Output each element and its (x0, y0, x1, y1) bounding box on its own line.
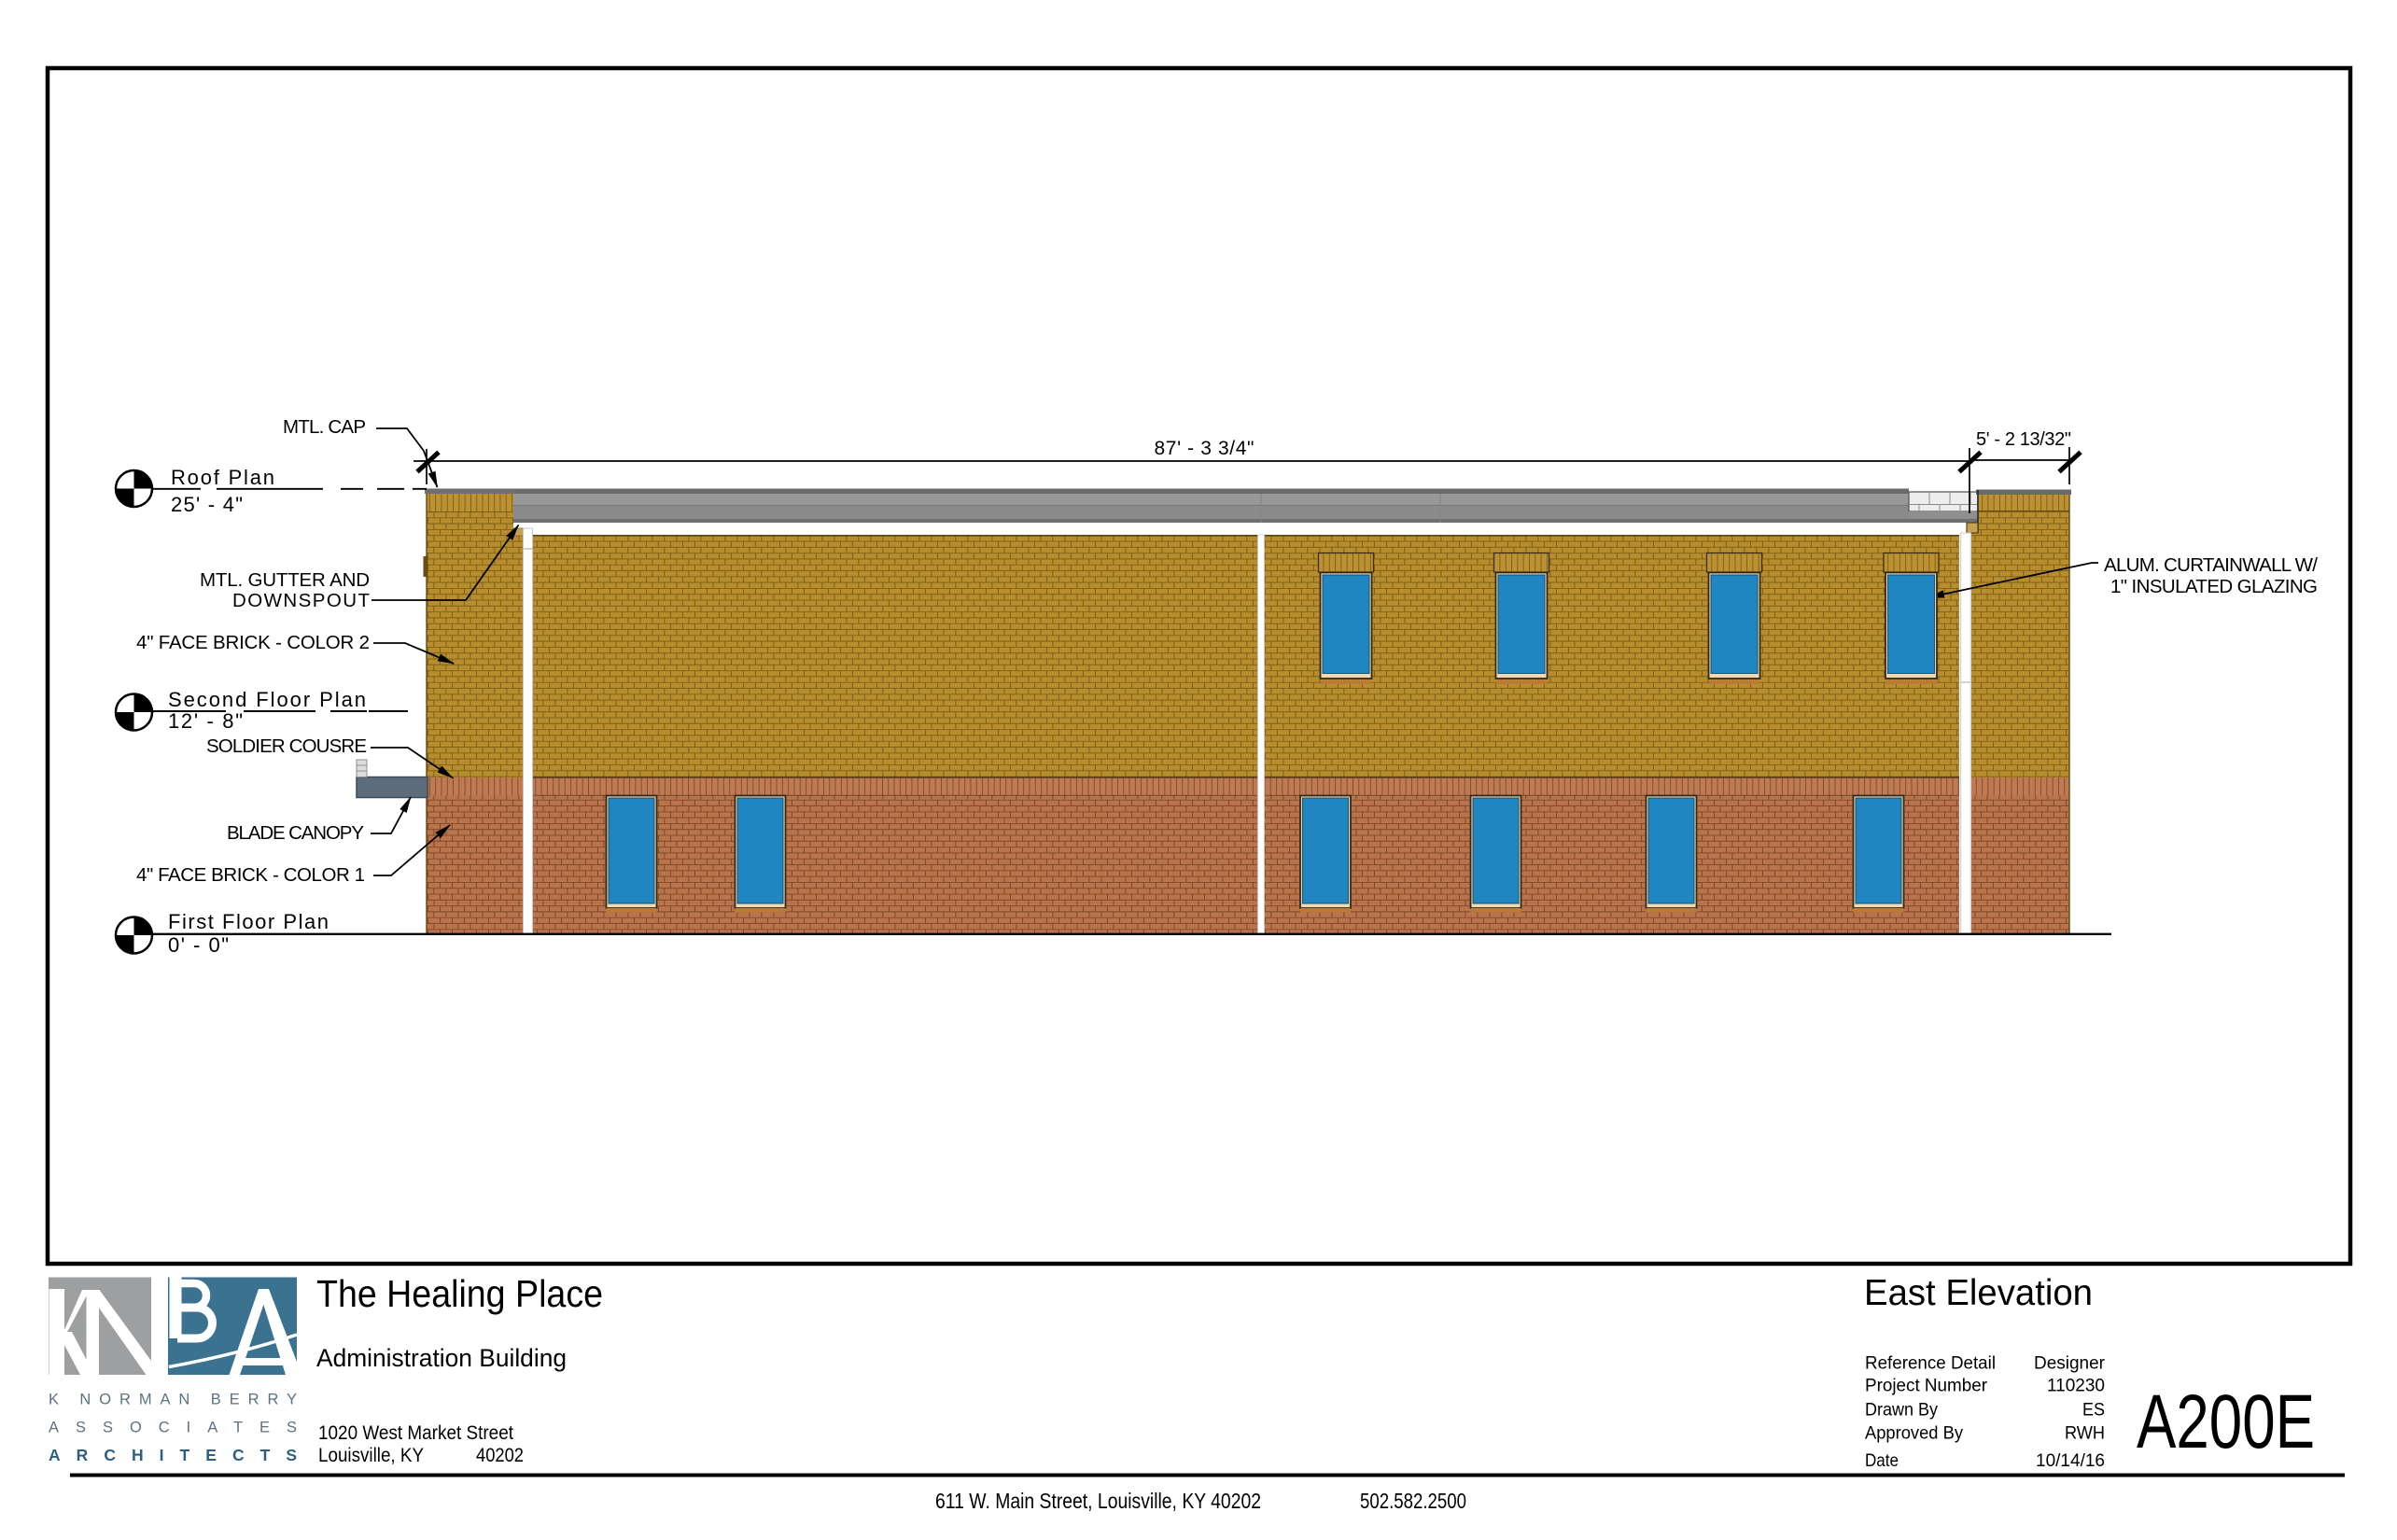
svg-text:Second Floor Plan: Second Floor Plan (168, 688, 366, 711)
svg-text:ALUM. CURTAINWALL W/: ALUM. CURTAINWALL W/ (2104, 554, 2318, 576)
svg-text:Administration Building: Administration Building (316, 1344, 567, 1372)
svg-text:Louisville, KY: Louisville, KY (318, 1445, 424, 1466)
svg-text:502.582.2500: 502.582.2500 (1360, 1489, 1466, 1513)
svg-text:4" FACE BRICK - COLOR 2: 4" FACE BRICK - COLOR 2 (136, 632, 370, 653)
svg-text:Designer: Designer (2034, 1353, 2105, 1374)
svg-text:10/14/16: 10/14/16 (2036, 1450, 2105, 1471)
svg-text:110230: 110230 (2047, 1376, 2105, 1396)
svg-text:The Healing Place: The Healing Place (316, 1272, 603, 1315)
svg-text:25' - 4": 25' - 4" (171, 493, 243, 516)
svg-text:East Elevation: East Elevation (1864, 1273, 2093, 1313)
svg-text:A200E: A200E (2137, 1379, 2315, 1464)
svg-text:87' - 3 3/4": 87' - 3 3/4" (1155, 438, 1255, 459)
svg-text:SOLDIER COUSRE: SOLDIER COUSRE (206, 735, 367, 757)
svg-text:RWH: RWH (2065, 1423, 2105, 1444)
svg-text:40202: 40202 (476, 1445, 524, 1466)
svg-text:1" INSULATED GLAZING: 1" INSULATED GLAZING (2110, 576, 2318, 597)
svg-text:Drawn By: Drawn By (1865, 1400, 1938, 1421)
svg-text:Date: Date (1865, 1450, 1899, 1471)
svg-text:4" FACE BRICK - COLOR 1: 4" FACE BRICK - COLOR 1 (136, 864, 365, 886)
svg-text:611 W. Main Street, Louisville: 611 W. Main Street, Louisville, KY 40202 (935, 1489, 1261, 1513)
svg-text:First Floor Plan: First Floor Plan (168, 910, 329, 933)
svg-text:1020 West Market Street: 1020 West Market Street (318, 1422, 513, 1444)
svg-text:BLADE CANOPY: BLADE CANOPY (227, 822, 364, 844)
svg-text:DOWNSPOUT: DOWNSPOUT (232, 590, 370, 611)
svg-text:ES: ES (2082, 1400, 2105, 1421)
svg-text:Approved By: Approved By (1865, 1423, 1963, 1444)
svg-text:0' - 0": 0' - 0" (168, 933, 229, 957)
svg-text:Project Number: Project Number (1865, 1376, 1987, 1396)
svg-text:5' - 2 13/32": 5' - 2 13/32" (1976, 429, 2071, 450)
svg-text:MTL. CAP: MTL. CAP (283, 416, 366, 438)
svg-text:Reference Detail: Reference Detail (1865, 1353, 1996, 1374)
svg-text:MTL. GUTTER AND: MTL. GUTTER AND (200, 569, 370, 591)
